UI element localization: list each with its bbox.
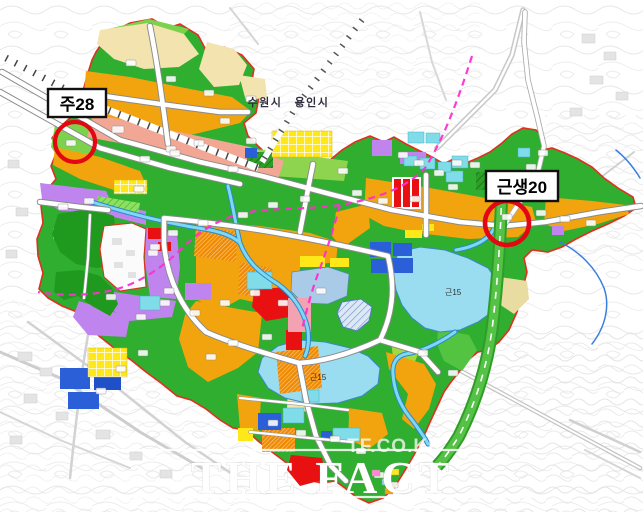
south-lake-label: 근15 [310, 373, 327, 382]
map-canvas: 근15 근15 주28 근생20 수원시 용인시 TF.CO.KR THE FA… [0, 0, 643, 512]
callout-ju28-label: 주28 [60, 95, 95, 114]
callout-geunsaeng20-label: 근생20 [497, 178, 547, 197]
watermark-brand: THE FACT [191, 452, 453, 503]
callout-geunsaeng20: 근생20 [486, 171, 558, 201]
callout-ju28: 주28 [48, 89, 106, 117]
city-label-suwon: 수원시 [248, 95, 283, 109]
land-use-plan-map: 근15 근15 주28 근생20 수원시 용인시 TF.CO.KR THE FA… [0, 0, 643, 512]
east-lake-label: 근15 [445, 288, 462, 297]
city-label-yongin: 용인시 [295, 95, 330, 109]
